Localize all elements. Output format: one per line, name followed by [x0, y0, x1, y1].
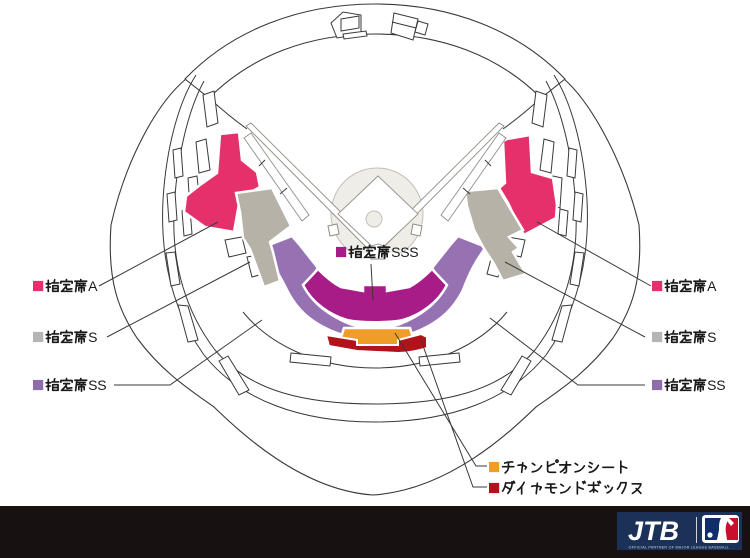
svg-text:S: S: [400, 244, 409, 260]
svg-text:S: S: [88, 377, 97, 393]
svg-text:S: S: [409, 244, 418, 260]
svg-text:S: S: [97, 377, 106, 393]
svg-text:OFFICIAL PARTNER OF MAJOR LEAG: OFFICIAL PARTNER OF MAJOR LEAGUE BASEBAL…: [629, 546, 730, 550]
svg-text:S: S: [707, 329, 716, 345]
svg-text:S: S: [391, 244, 400, 260]
svg-text:A: A: [707, 278, 717, 294]
svg-text:JTB: JTB: [628, 516, 679, 546]
svg-text:S: S: [716, 377, 725, 393]
svg-text:S: S: [88, 329, 97, 345]
svg-text:A: A: [88, 278, 98, 294]
svg-text:S: S: [707, 377, 716, 393]
